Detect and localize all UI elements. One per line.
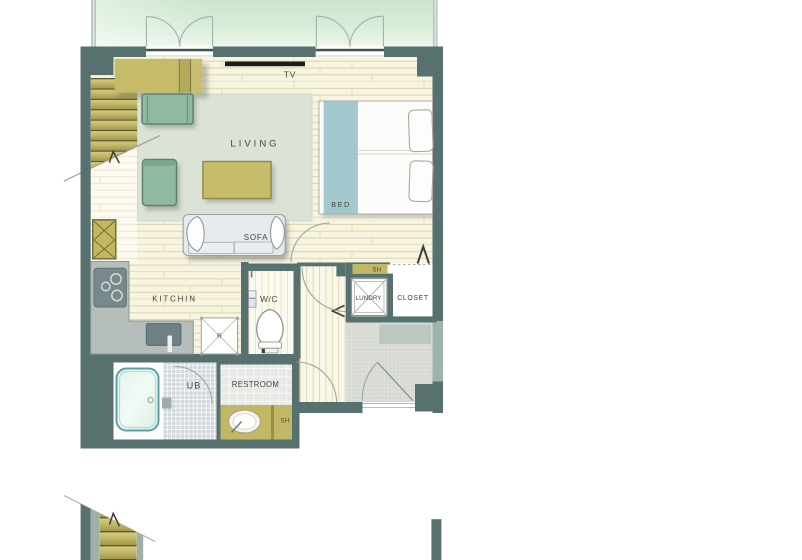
- svg-text:LUNDRY: LUNDRY: [356, 295, 383, 302]
- svg-text:UB: UB: [187, 381, 202, 391]
- svg-text:SH: SH: [372, 267, 381, 274]
- svg-text:BED: BED: [331, 200, 351, 209]
- svg-text:LIVING: LIVING: [230, 139, 279, 150]
- svg-text:SH: SH: [280, 418, 289, 425]
- svg-text:W/C: W/C: [260, 294, 278, 304]
- svg-text:R: R: [217, 333, 222, 340]
- svg-text:CLOSET: CLOSET: [397, 295, 429, 302]
- svg-text:TV: TV: [284, 70, 296, 80]
- svg-text:RESTROOM: RESTROOM: [232, 380, 279, 389]
- svg-text:KITCHIN: KITCHIN: [152, 295, 197, 304]
- svg-text:SOFA: SOFA: [244, 233, 269, 242]
